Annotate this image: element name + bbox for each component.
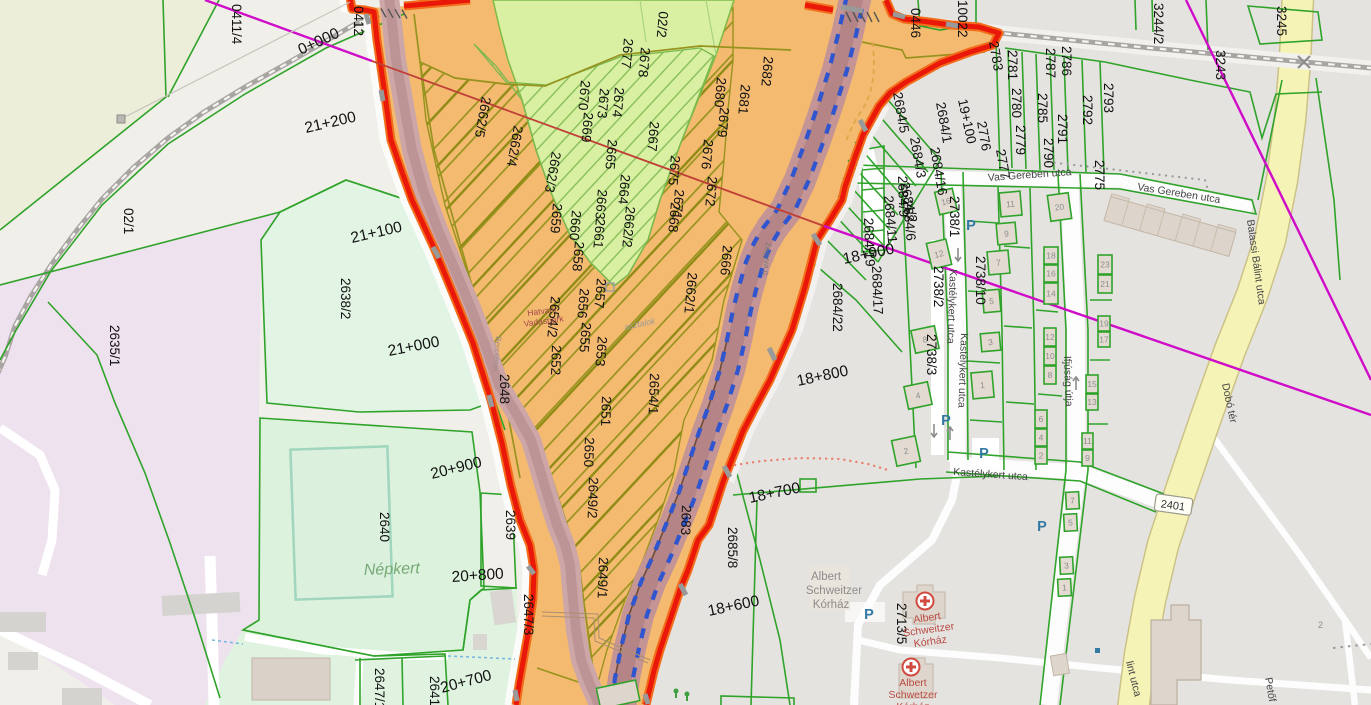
svg-text:17: 17 — [1099, 335, 1109, 345]
svg-text:Albert: Albert — [899, 677, 927, 689]
svg-text:2656: 2656 — [574, 288, 592, 319]
svg-text:2655: 2655 — [576, 322, 594, 353]
svg-text:2738/2: 2738/2 — [931, 266, 946, 307]
svg-text:16: 16 — [1046, 269, 1056, 279]
svg-text:2652: 2652 — [548, 345, 564, 376]
svg-text:3245: 3245 — [1274, 6, 1289, 36]
svg-text:4: 4 — [1039, 433, 1044, 443]
svg-text:2786: 2786 — [1059, 46, 1074, 76]
svg-text:Schweitzer: Schweitzer — [806, 585, 862, 597]
svg-text:2793: 2793 — [1101, 83, 1116, 113]
svg-text:0446: 0446 — [908, 8, 923, 38]
svg-text:3243: 3243 — [1213, 50, 1228, 80]
svg-text:2675: 2675 — [665, 155, 683, 186]
svg-text:2: 2 — [1318, 620, 1323, 630]
svg-text:2672: 2672 — [702, 176, 720, 207]
svg-text:8: 8 — [1048, 370, 1053, 380]
svg-text:P: P — [979, 446, 989, 462]
svg-text:2679: 2679 — [714, 107, 732, 138]
svg-text:2684/9: 2684/9 — [895, 176, 911, 218]
svg-text:2638/2: 2638/2 — [338, 278, 353, 319]
svg-text:2649/1: 2649/1 — [595, 557, 611, 599]
svg-text:2738/3: 2738/3 — [924, 334, 939, 375]
svg-text:19: 19 — [1099, 319, 1109, 329]
svg-text:10: 10 — [1045, 351, 1055, 361]
svg-text:P: P — [966, 218, 976, 234]
svg-text:2738/10: 2738/10 — [973, 256, 988, 305]
svg-text:2664: 2664 — [615, 174, 633, 206]
svg-text:21: 21 — [1100, 279, 1110, 289]
svg-text:10022: 10022 — [955, 0, 970, 38]
svg-text:2680: 2680 — [711, 77, 729, 108]
svg-text:2654/1: 2654/1 — [646, 373, 662, 415]
svg-text:2657: 2657 — [591, 278, 609, 309]
svg-text:P: P — [864, 607, 874, 623]
svg-text:2667: 2667 — [644, 121, 662, 152]
svg-text:2674: 2674 — [609, 87, 627, 119]
svg-text:2673: 2673 — [594, 88, 612, 119]
svg-text:Schwetzer: Schwetzer — [888, 689, 938, 701]
svg-text:9: 9 — [1085, 453, 1090, 463]
svg-text:2738/1: 2738/1 — [947, 196, 962, 237]
svg-text:14: 14 — [1046, 289, 1056, 299]
svg-text:2781: 2781 — [1005, 50, 1020, 80]
svg-text:2670: 2670 — [575, 80, 593, 111]
svg-text:2651: 2651 — [598, 396, 614, 427]
svg-text:2663: 2663 — [592, 189, 610, 220]
svg-text:Albert: Albert — [811, 571, 842, 583]
svg-text:Kórház: Kórház — [896, 701, 929, 705]
svg-text:2682: 2682 — [758, 56, 776, 87]
svg-text:2647/3: 2647/3 — [521, 594, 536, 635]
svg-text:0412: 0412 — [351, 6, 366, 36]
svg-text:23: 23 — [1100, 260, 1110, 270]
svg-text:2685/8: 2685/8 — [725, 527, 740, 568]
svg-text:2653: 2653 — [592, 336, 610, 367]
svg-text:2640: 2640 — [377, 512, 392, 542]
svg-text:2659: 2659 — [547, 203, 565, 234]
svg-text:2678: 2678 — [635, 47, 653, 78]
svg-text:7: 7 — [1070, 495, 1076, 505]
svg-text:2779: 2779 — [1013, 125, 1028, 155]
svg-text:02/1: 02/1 — [121, 208, 136, 234]
svg-text:Ifjúság útja: Ifjúság útja — [1061, 356, 1075, 407]
svg-text:2792: 2792 — [1080, 95, 1095, 125]
svg-text:2669: 2669 — [578, 112, 596, 143]
svg-text:18: 18 — [1046, 251, 1056, 261]
svg-text:20: 20 — [1054, 201, 1065, 212]
svg-text:2639: 2639 — [503, 510, 518, 540]
svg-text:2676: 2676 — [698, 139, 716, 170]
svg-text:2647/1: 2647/1 — [372, 668, 387, 705]
svg-text:P: P — [1037, 519, 1047, 535]
svg-text:2684/22: 2684/22 — [830, 283, 845, 332]
svg-text:2785: 2785 — [1035, 93, 1050, 123]
svg-text:Kórház: Kórház — [813, 599, 850, 611]
svg-text:2658: 2658 — [569, 241, 587, 272]
svg-text:2635/1: 2635/1 — [107, 325, 122, 366]
svg-text:2666: 2666 — [717, 245, 735, 276]
svg-text:2660: 2660 — [566, 210, 584, 241]
svg-text:2671: 2671 — [669, 189, 687, 220]
svg-text:Népkert: Népkert — [364, 560, 421, 579]
svg-text:2: 2 — [1039, 451, 1044, 461]
svg-text:2683: 2683 — [678, 505, 694, 536]
svg-text:1: 1 — [1062, 582, 1068, 592]
svg-text:2648: 2648 — [497, 374, 512, 404]
svg-text:2775: 2775 — [1092, 160, 1107, 190]
svg-text:2787: 2787 — [1043, 48, 1058, 78]
svg-text:5: 5 — [1068, 517, 1074, 527]
svg-text:13: 13 — [1087, 397, 1097, 407]
svg-text:2791: 2791 — [1055, 114, 1070, 144]
svg-text:2650: 2650 — [581, 437, 597, 468]
svg-text:2681: 2681 — [735, 84, 753, 115]
svg-text:12: 12 — [1045, 332, 1055, 342]
svg-text:2684/17: 2684/17 — [869, 266, 886, 315]
svg-text:11: 11 — [1006, 199, 1016, 210]
svg-text:2649/2: 2649/2 — [585, 477, 601, 519]
svg-text:2790: 2790 — [1041, 138, 1056, 168]
svg-text:2665: 2665 — [602, 139, 620, 170]
svg-text:2780: 2780 — [1009, 88, 1024, 118]
svg-text:2661: 2661 — [590, 218, 608, 249]
svg-text:2677: 2677 — [618, 38, 636, 69]
svg-text:0411/4: 0411/4 — [229, 4, 244, 45]
svg-text:6: 6 — [1039, 414, 1044, 424]
svg-text:3: 3 — [1064, 560, 1070, 570]
svg-text:3244/2: 3244/2 — [1151, 3, 1166, 44]
svg-text:02/2: 02/2 — [654, 11, 671, 38]
svg-text:15: 15 — [1087, 379, 1097, 389]
svg-text:11: 11 — [1083, 436, 1092, 446]
